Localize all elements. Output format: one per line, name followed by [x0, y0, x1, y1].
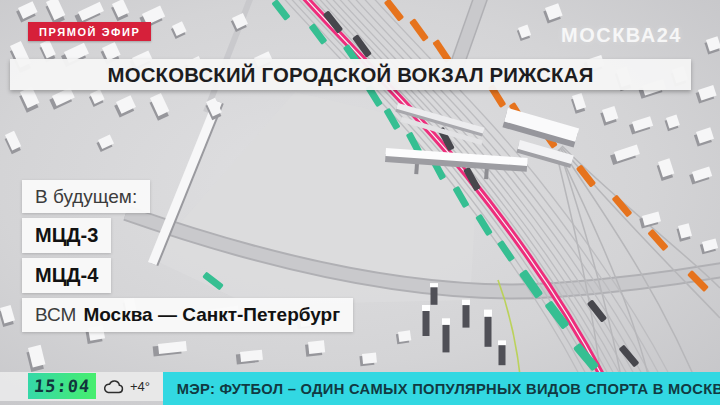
ticker-text: МЭР: ФУТБОЛ – ОДИН САМЫХ ПОПУЛЯРНЫХ ВИДО… — [163, 380, 720, 397]
headline-band: МОСКОВСКИЙ ГОРОДСКОЙ ВОКЗАЛ РИЖСКАЯ — [10, 59, 691, 90]
future-line-mcd3: МЦД-3 — [22, 218, 111, 253]
line-name: Москва — Санкт-Петербург — [83, 304, 340, 326]
clock-time: 15:04 — [33, 376, 91, 396]
temperature: +4° — [130, 379, 150, 394]
live-badge-label: ПРЯМОЙ ЭФИР — [39, 26, 140, 38]
future-panel-heading: В будущем: — [22, 180, 150, 213]
headline-text: МОСКОВСКИЙ ГОРОДСКОЙ ВОКЗАЛ РИЖСКАЯ — [108, 63, 594, 87]
channel-logo-text: МОСКВА24 — [561, 24, 682, 46]
live-badge: ПРЯМОЙ ЭФИР — [28, 22, 151, 41]
cloud-icon — [102, 378, 126, 395]
future-lines-panel: В будущем: МЦД-3 МЦД-4 ВСМ Москва — Санк… — [22, 180, 353, 332]
channel-logo: МОСКВА24 — [561, 24, 682, 47]
broadcast-frame: ПРЯМОЙ ЭФИР МОСКВА24 МОСКОВСКИЙ ГОРОДСКО… — [0, 0, 720, 405]
clock: 15:04 — [28, 373, 96, 399]
future-line-vsm: ВСМ Москва — Санкт-Петербург — [22, 298, 353, 332]
future-line-mcd4: МЦД-4 — [22, 258, 111, 293]
news-ticker: МЭР: ФУТБОЛ – ОДИН САМЫХ ПОПУЛЯРНЫХ ВИДО… — [163, 372, 720, 405]
line-prefix: ВСМ — [35, 304, 76, 326]
line-name: МЦД-4 — [35, 264, 98, 287]
weather-widget: +4° — [102, 373, 162, 399]
line-name: МЦД-3 — [35, 224, 98, 247]
